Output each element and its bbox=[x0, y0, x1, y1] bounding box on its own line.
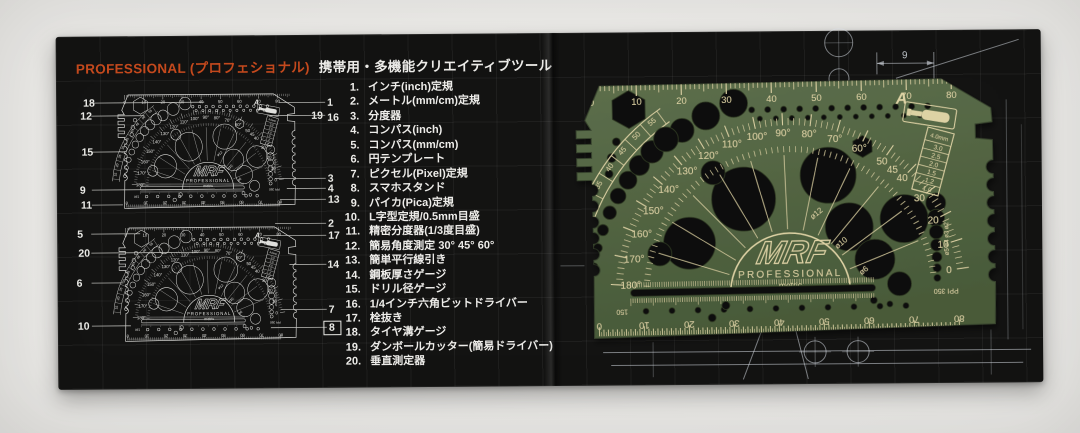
diagram-number-label: 1 bbox=[327, 97, 333, 109]
protractor-label: 100° bbox=[747, 131, 768, 142]
diagram-number-label: 11 bbox=[81, 200, 92, 212]
small-hole bbox=[845, 105, 851, 111]
drill-hole bbox=[593, 243, 602, 252]
protractor-label: 160° bbox=[631, 229, 652, 240]
feature-number: 4. bbox=[335, 124, 359, 139]
small-hole bbox=[851, 304, 857, 310]
protractor-label: 80° bbox=[214, 115, 221, 120]
drill-gauge-label: 25 bbox=[576, 218, 587, 229]
logo-sub-text: PROFESSIONAL bbox=[187, 311, 231, 316]
feature-number: 9. bbox=[336, 196, 360, 211]
protractor-label: 70° bbox=[226, 251, 233, 256]
small-hole bbox=[877, 303, 883, 309]
top-ruler-number: 30 bbox=[181, 232, 186, 237]
drill-hole bbox=[933, 264, 942, 273]
small-hole bbox=[232, 105, 235, 108]
small-hole bbox=[256, 194, 259, 197]
small-hole bbox=[250, 242, 252, 244]
small-hole bbox=[244, 242, 246, 244]
drill-hole bbox=[270, 315, 273, 318]
protractor-label: 110° bbox=[181, 252, 190, 257]
feature-label: インチ(inch)定規 bbox=[368, 80, 453, 95]
small-hole bbox=[861, 104, 867, 110]
small-hole bbox=[180, 326, 183, 330]
feature-number: 12. bbox=[336, 239, 360, 254]
small-hole bbox=[191, 328, 194, 331]
protractor-label: 45 bbox=[250, 132, 255, 137]
small-hole bbox=[257, 327, 260, 330]
small-hole bbox=[133, 118, 136, 122]
bottom-ruler-number: 70 bbox=[259, 333, 264, 338]
bottle-opener-icon bbox=[257, 104, 280, 117]
small-hole bbox=[829, 105, 835, 111]
feature-label: 円テンプレート bbox=[369, 152, 446, 167]
small-hole bbox=[249, 193, 252, 196]
bottom-ruler-number: 20 bbox=[162, 200, 167, 205]
small-hole bbox=[229, 109, 231, 111]
protractor-label: 20 bbox=[928, 215, 940, 226]
diagram-number-label: 15 bbox=[81, 147, 93, 159]
top-ruler-number: 20 bbox=[161, 99, 166, 104]
small-hole bbox=[223, 195, 226, 198]
small-hole bbox=[220, 238, 223, 241]
drill-hole bbox=[597, 224, 608, 235]
feature-label: 垂直測定器 bbox=[370, 354, 425, 369]
feature-label: コンパス(mm/cm) bbox=[368, 137, 458, 152]
circle-diameter-label: ø6 bbox=[237, 177, 243, 183]
small-hole bbox=[205, 105, 208, 108]
bottom-ruler-number: 80 bbox=[954, 312, 965, 323]
small-hole bbox=[222, 109, 224, 111]
small-hole bbox=[887, 301, 893, 307]
feature-number: 7. bbox=[336, 167, 360, 182]
feature-number: 10. bbox=[336, 210, 360, 225]
feature-label: タイヤ溝ゲージ bbox=[370, 325, 447, 340]
bottom-ruler-number: 10 bbox=[639, 319, 650, 330]
small-hole bbox=[224, 328, 227, 331]
protractor-label: 20 bbox=[267, 155, 272, 160]
feature-label: 1/4インチ六角ビットドライバー bbox=[370, 296, 528, 312]
page-title: PROFESSIONAL (プロフェショナル) 携帯用・多機能クリエイティブツー… bbox=[76, 54, 553, 78]
drill-gauge-label: 30 bbox=[121, 145, 126, 150]
drill-hole bbox=[133, 274, 140, 281]
top-ruler-number: 80 bbox=[946, 90, 957, 101]
small-hole bbox=[260, 238, 263, 241]
feature-label: 分度器 bbox=[368, 109, 401, 124]
circle-hole bbox=[167, 103, 179, 116]
bottom-ruler-number: 40 bbox=[774, 316, 785, 327]
top-ruler-number: 40 bbox=[200, 232, 205, 237]
bottom-ruler-number: 10 bbox=[143, 200, 148, 205]
small-hole bbox=[249, 109, 251, 111]
circle-hole bbox=[214, 257, 238, 282]
small-hole bbox=[206, 238, 209, 241]
feature-number: 19. bbox=[337, 340, 361, 355]
template-photo: 01020304050607080010203040455060°70°80°9… bbox=[561, 71, 1013, 370]
top-ruler-number: 30 bbox=[180, 99, 185, 104]
drill-hole bbox=[145, 120, 155, 130]
feature-number: 20. bbox=[337, 355, 361, 370]
protractor-label: 40 bbox=[254, 136, 259, 141]
small-hole bbox=[266, 105, 269, 108]
small-hole bbox=[236, 109, 238, 111]
circle-hole bbox=[154, 154, 176, 178]
slot-label: 150 bbox=[616, 308, 628, 315]
brand-kana-label: (プロフェショナル) bbox=[190, 60, 310, 76]
corner-letter: A bbox=[895, 90, 908, 107]
small-hole bbox=[213, 238, 216, 241]
protractor-label: 110° bbox=[722, 139, 742, 150]
circle-hole bbox=[800, 147, 857, 204]
protractor-label: 150° bbox=[147, 282, 156, 287]
circle-hole bbox=[249, 180, 259, 191]
protractor-label: 160° bbox=[141, 159, 150, 164]
circle-diameter-label: ø10 bbox=[228, 297, 235, 304]
drill-hole bbox=[129, 149, 135, 155]
diagram-number-label: 6 bbox=[77, 278, 83, 290]
diagram-number-label: 20 bbox=[78, 248, 90, 260]
drill-hole bbox=[269, 177, 273, 181]
drill-gauge-label: 20 bbox=[571, 238, 582, 248]
small-hole bbox=[239, 105, 242, 108]
leader-line bbox=[92, 189, 215, 190]
feature-number: 16. bbox=[337, 297, 361, 312]
small-hole bbox=[267, 238, 270, 241]
small-hole bbox=[192, 238, 195, 241]
small-hole bbox=[669, 308, 675, 314]
small-hole bbox=[191, 105, 194, 108]
top-ruler-number: 10 bbox=[142, 100, 147, 105]
drill-gauge-label: 15 bbox=[113, 172, 117, 176]
protractor-label: 140° bbox=[153, 139, 162, 144]
circle-hole bbox=[213, 124, 237, 149]
feature-label: 栓抜き bbox=[370, 311, 403, 326]
protractor-label: 50 bbox=[876, 157, 888, 168]
drill-hole bbox=[610, 188, 626, 204]
diagram-number-label: 2 bbox=[328, 218, 334, 230]
drill-gauge-label: 15 bbox=[114, 305, 118, 309]
small-hole bbox=[259, 105, 262, 108]
small-hole bbox=[246, 327, 249, 330]
drill-hole bbox=[653, 127, 678, 152]
small-hole bbox=[235, 328, 238, 331]
small-hole bbox=[805, 115, 810, 120]
top-ruler-number: 60 bbox=[856, 92, 867, 103]
drill-hole bbox=[126, 157, 131, 162]
thickness-gauge: 4.0mm3.02.52.01.51.21.0 bbox=[260, 116, 278, 147]
small-hole bbox=[708, 314, 716, 322]
small-hole bbox=[198, 105, 201, 108]
diagram-number-label: 18 bbox=[83, 98, 95, 110]
small-hole bbox=[202, 328, 205, 331]
feature-list: 1.インチ(inch)定規2.メートル(mm/cm)定規3.分度器4.コンパス(… bbox=[335, 79, 553, 369]
small-hole bbox=[199, 238, 202, 241]
ppi-label: PPI 350 bbox=[269, 187, 280, 191]
drill-hole bbox=[269, 182, 272, 185]
small-hole bbox=[695, 307, 701, 313]
small-hole bbox=[757, 116, 762, 121]
small-hole bbox=[212, 105, 215, 108]
bottom-ruler-number: 50 bbox=[819, 315, 830, 326]
slot-label: 150 bbox=[134, 195, 139, 199]
small-hole bbox=[885, 113, 890, 118]
feature-number: 6. bbox=[336, 153, 360, 168]
small-hole bbox=[219, 105, 222, 108]
small-hole bbox=[145, 195, 148, 198]
drill-gauge-label: 20 bbox=[115, 163, 120, 168]
small-hole bbox=[226, 238, 229, 241]
protractor-label: 30 bbox=[262, 278, 267, 283]
bottom-ruler-number: 0 bbox=[125, 201, 128, 206]
brand-label: PROFESSIONAL bbox=[76, 61, 186, 77]
small-hole bbox=[213, 328, 216, 331]
small-hole bbox=[837, 114, 842, 119]
circle-diameter-label: ø12 bbox=[216, 150, 223, 157]
drill-hole bbox=[140, 126, 149, 135]
top-ruler-number: 20 bbox=[162, 232, 167, 237]
top-ruler-number: 50 bbox=[219, 232, 224, 237]
bottle-opener-icon bbox=[258, 237, 281, 250]
protractor-label: 0 bbox=[275, 310, 278, 315]
small-hole bbox=[243, 325, 246, 328]
top-ruler-number: 40 bbox=[199, 99, 204, 104]
feature-number: 15. bbox=[337, 283, 361, 298]
feature-label: ドリル径ゲージ bbox=[370, 282, 447, 297]
feature-number: 5. bbox=[335, 138, 359, 153]
drill-hole bbox=[267, 160, 273, 166]
small-hole bbox=[747, 306, 753, 312]
small-hole bbox=[202, 109, 204, 111]
protractor-label: 50 bbox=[245, 128, 250, 133]
circle-hole bbox=[171, 129, 181, 140]
subtitle-label: 携帯用・多機能クリエイティブツール bbox=[319, 58, 553, 75]
bottom-ruler-number: 20 bbox=[163, 333, 168, 338]
bottom-ruler-number: 0 bbox=[597, 320, 603, 331]
diagram-number-label: 10 bbox=[78, 321, 90, 333]
protractor-label: 60° bbox=[235, 122, 242, 127]
small-hole bbox=[212, 195, 215, 198]
thickness-gauge: 4.0mm3.02.52.01.51.21.0 bbox=[261, 249, 279, 280]
drill-hole bbox=[141, 259, 150, 268]
feature-item: 19.ダンボールカッター(簡易ドライバー) bbox=[337, 339, 553, 355]
small-hole bbox=[925, 103, 931, 109]
protractor-label: 150° bbox=[146, 149, 155, 154]
bottom-ruler-number: 80 bbox=[278, 332, 283, 337]
protractor-label: 45 bbox=[887, 164, 899, 175]
circle-diameter-label: ø6 bbox=[238, 310, 244, 316]
protractor-label: 150° bbox=[643, 206, 664, 217]
small-hole bbox=[612, 138, 620, 146]
small-hole bbox=[853, 114, 858, 119]
feature-label: 鋼板厚さゲージ bbox=[369, 268, 446, 283]
small-hole bbox=[230, 242, 232, 244]
bottom-ruler-number: 70 bbox=[909, 313, 920, 324]
drill-gauge-label: 15 bbox=[567, 259, 577, 268]
top-ruler-number: 30 bbox=[721, 95, 732, 106]
protractor-label: 70° bbox=[225, 118, 232, 123]
drill-hole bbox=[130, 282, 136, 288]
drill-gauge-label: 25 bbox=[117, 154, 122, 159]
feature-number: 17. bbox=[337, 311, 361, 326]
circle-hole bbox=[158, 110, 168, 121]
small-hole bbox=[225, 105, 228, 108]
protractor-label: 170° bbox=[139, 303, 148, 308]
protractor-label: 30 bbox=[914, 193, 926, 204]
small-hole bbox=[146, 328, 149, 331]
protractor-label: 60° bbox=[852, 143, 867, 154]
small-hole bbox=[765, 106, 771, 112]
protractor-label: 70° bbox=[827, 134, 842, 145]
protractor-label: 130° bbox=[677, 166, 698, 177]
booklet-spine bbox=[542, 33, 563, 386]
drill-hole bbox=[591, 263, 598, 270]
protractor-label: 50 bbox=[246, 261, 251, 266]
ruler-slot bbox=[141, 319, 245, 323]
bottom-ruler-number: 60 bbox=[864, 314, 875, 325]
bottom-ruler-number: 60 bbox=[239, 200, 244, 205]
circle-hole bbox=[691, 102, 720, 131]
bottom-ruler-number: 20 bbox=[684, 318, 695, 329]
protractor-label: 140° bbox=[658, 184, 679, 195]
protractor-label: 90° bbox=[203, 115, 210, 120]
small-hole bbox=[246, 105, 249, 108]
protractor-label: 40 bbox=[255, 269, 260, 274]
bottom-ruler-number: 80 bbox=[277, 199, 282, 204]
bottom-ruler-number: 30 bbox=[729, 317, 740, 328]
small-hole bbox=[773, 116, 778, 121]
protractor-label: 0 bbox=[946, 265, 952, 276]
small-hole bbox=[196, 242, 198, 244]
small-hole bbox=[167, 195, 170, 198]
feature-number: 11. bbox=[336, 225, 360, 240]
small-hole bbox=[223, 242, 225, 244]
small-hole bbox=[174, 331, 177, 335]
top-ruler-number: 10 bbox=[143, 233, 148, 238]
drill-hole bbox=[929, 225, 943, 239]
protractor-label: 110° bbox=[180, 119, 189, 124]
ppi-label: PPI 350 bbox=[270, 320, 281, 324]
feature-label: スマホスタンド bbox=[369, 181, 446, 196]
feature-item: 20.垂直測定器 bbox=[337, 353, 553, 369]
ppi-label: PPI 350 bbox=[934, 286, 959, 294]
protractor-label: 80° bbox=[801, 129, 816, 140]
bottom-ruler-number: 40 bbox=[200, 200, 205, 205]
small-hole bbox=[250, 326, 253, 329]
feature-number: 13. bbox=[336, 254, 360, 269]
small-hole bbox=[749, 107, 755, 113]
protractor-label: 160° bbox=[142, 292, 151, 297]
small-hole bbox=[168, 328, 171, 331]
small-hole bbox=[722, 301, 730, 309]
feature-label: パイカ(Pica)定規 bbox=[369, 195, 454, 210]
booklet: PROFESSIONAL (プロフェショナル) 携帯用・多機能クリエイティブツー… bbox=[56, 29, 1044, 390]
drill-gauge-label: 25 bbox=[118, 287, 123, 292]
feature-number: 14. bbox=[336, 268, 360, 283]
drill-hole bbox=[934, 274, 941, 281]
small-hole bbox=[825, 304, 831, 310]
small-hole bbox=[203, 242, 205, 244]
slot-label: 150 bbox=[135, 328, 140, 332]
circle-hole bbox=[701, 160, 726, 185]
bottom-ruler-number: 0 bbox=[126, 334, 129, 339]
protractor-label: 120° bbox=[171, 257, 180, 262]
small-hole bbox=[869, 114, 874, 119]
small-hole bbox=[242, 192, 245, 195]
feature-label: L字型定規/0.5mm目盛 bbox=[369, 209, 480, 224]
small-hole bbox=[190, 195, 193, 198]
circle-hole bbox=[887, 271, 912, 296]
circle-hole bbox=[250, 313, 260, 324]
protractor-label: 120° bbox=[698, 151, 719, 162]
drill-hole bbox=[270, 310, 274, 314]
small-hole bbox=[773, 305, 779, 311]
feature-label: コンパス(inch) bbox=[368, 123, 442, 138]
top-ruler-number: 50 bbox=[811, 93, 822, 104]
small-hole bbox=[813, 105, 819, 111]
diagram-number-label: 9 bbox=[80, 185, 86, 197]
small-hole bbox=[237, 242, 239, 244]
small-hole bbox=[903, 303, 909, 309]
protractor-label: 170° bbox=[138, 170, 147, 175]
protractor-label: 140° bbox=[154, 272, 163, 277]
small-hole bbox=[877, 104, 883, 110]
protractor-label: 130° bbox=[162, 264, 171, 269]
feature-number: 2. bbox=[335, 95, 359, 110]
small-hole bbox=[247, 238, 250, 241]
top-ruler-number: 20 bbox=[676, 96, 687, 107]
small-hole bbox=[233, 238, 236, 241]
protractor-label: 120° bbox=[170, 124, 179, 129]
protractor-label: 40 bbox=[897, 173, 909, 184]
small-hole bbox=[157, 328, 160, 331]
diagram-number-label: 7 bbox=[329, 304, 335, 316]
protractor-label: 60° bbox=[236, 255, 243, 260]
small-hole bbox=[234, 195, 237, 198]
bottom-ruler-number: 60 bbox=[240, 333, 245, 338]
leader-line bbox=[91, 102, 204, 103]
small-hole bbox=[909, 103, 915, 109]
diagram-number-label: 8 bbox=[329, 322, 335, 334]
left-page-diagrams: 01020304050607080010203040455060°70°80°9… bbox=[64, 81, 358, 389]
bottom-ruler-number: 10 bbox=[144, 333, 149, 338]
top-ruler-number: 50 bbox=[218, 99, 223, 104]
drill-hole bbox=[269, 293, 275, 299]
bottom-ruler-number: 50 bbox=[219, 200, 224, 205]
bottom-ruler-number: 30 bbox=[182, 333, 187, 338]
circle-hole bbox=[168, 236, 180, 249]
protractor-label: 80° bbox=[215, 248, 222, 253]
logo-sub-text: PROFESSIONAL bbox=[186, 178, 230, 183]
diagram-number-label: 5 bbox=[77, 229, 83, 241]
feature-number: 18. bbox=[337, 326, 361, 341]
small-hole bbox=[243, 109, 245, 111]
small-hole bbox=[821, 115, 826, 120]
diagram-number-label: 19 bbox=[311, 110, 323, 122]
bottom-ruler-number: 30 bbox=[181, 200, 186, 205]
protractor-label: 130° bbox=[161, 131, 170, 136]
feature-item: 16.1/4インチ六角ビットドライバー bbox=[337, 296, 553, 312]
blueprint-dimension-label: 9 bbox=[902, 50, 908, 61]
small-hole bbox=[643, 308, 649, 314]
small-hole bbox=[781, 106, 787, 112]
small-hole bbox=[195, 109, 197, 111]
drill-gauge-label: 20 bbox=[116, 296, 121, 301]
top-ruler-number: 60 bbox=[238, 232, 243, 237]
bottom-ruler-number: 40 bbox=[201, 333, 206, 338]
protractor-label: 170° bbox=[624, 254, 645, 265]
circle-diameter-label: ø10 bbox=[226, 164, 233, 171]
circle-hole bbox=[155, 287, 177, 311]
